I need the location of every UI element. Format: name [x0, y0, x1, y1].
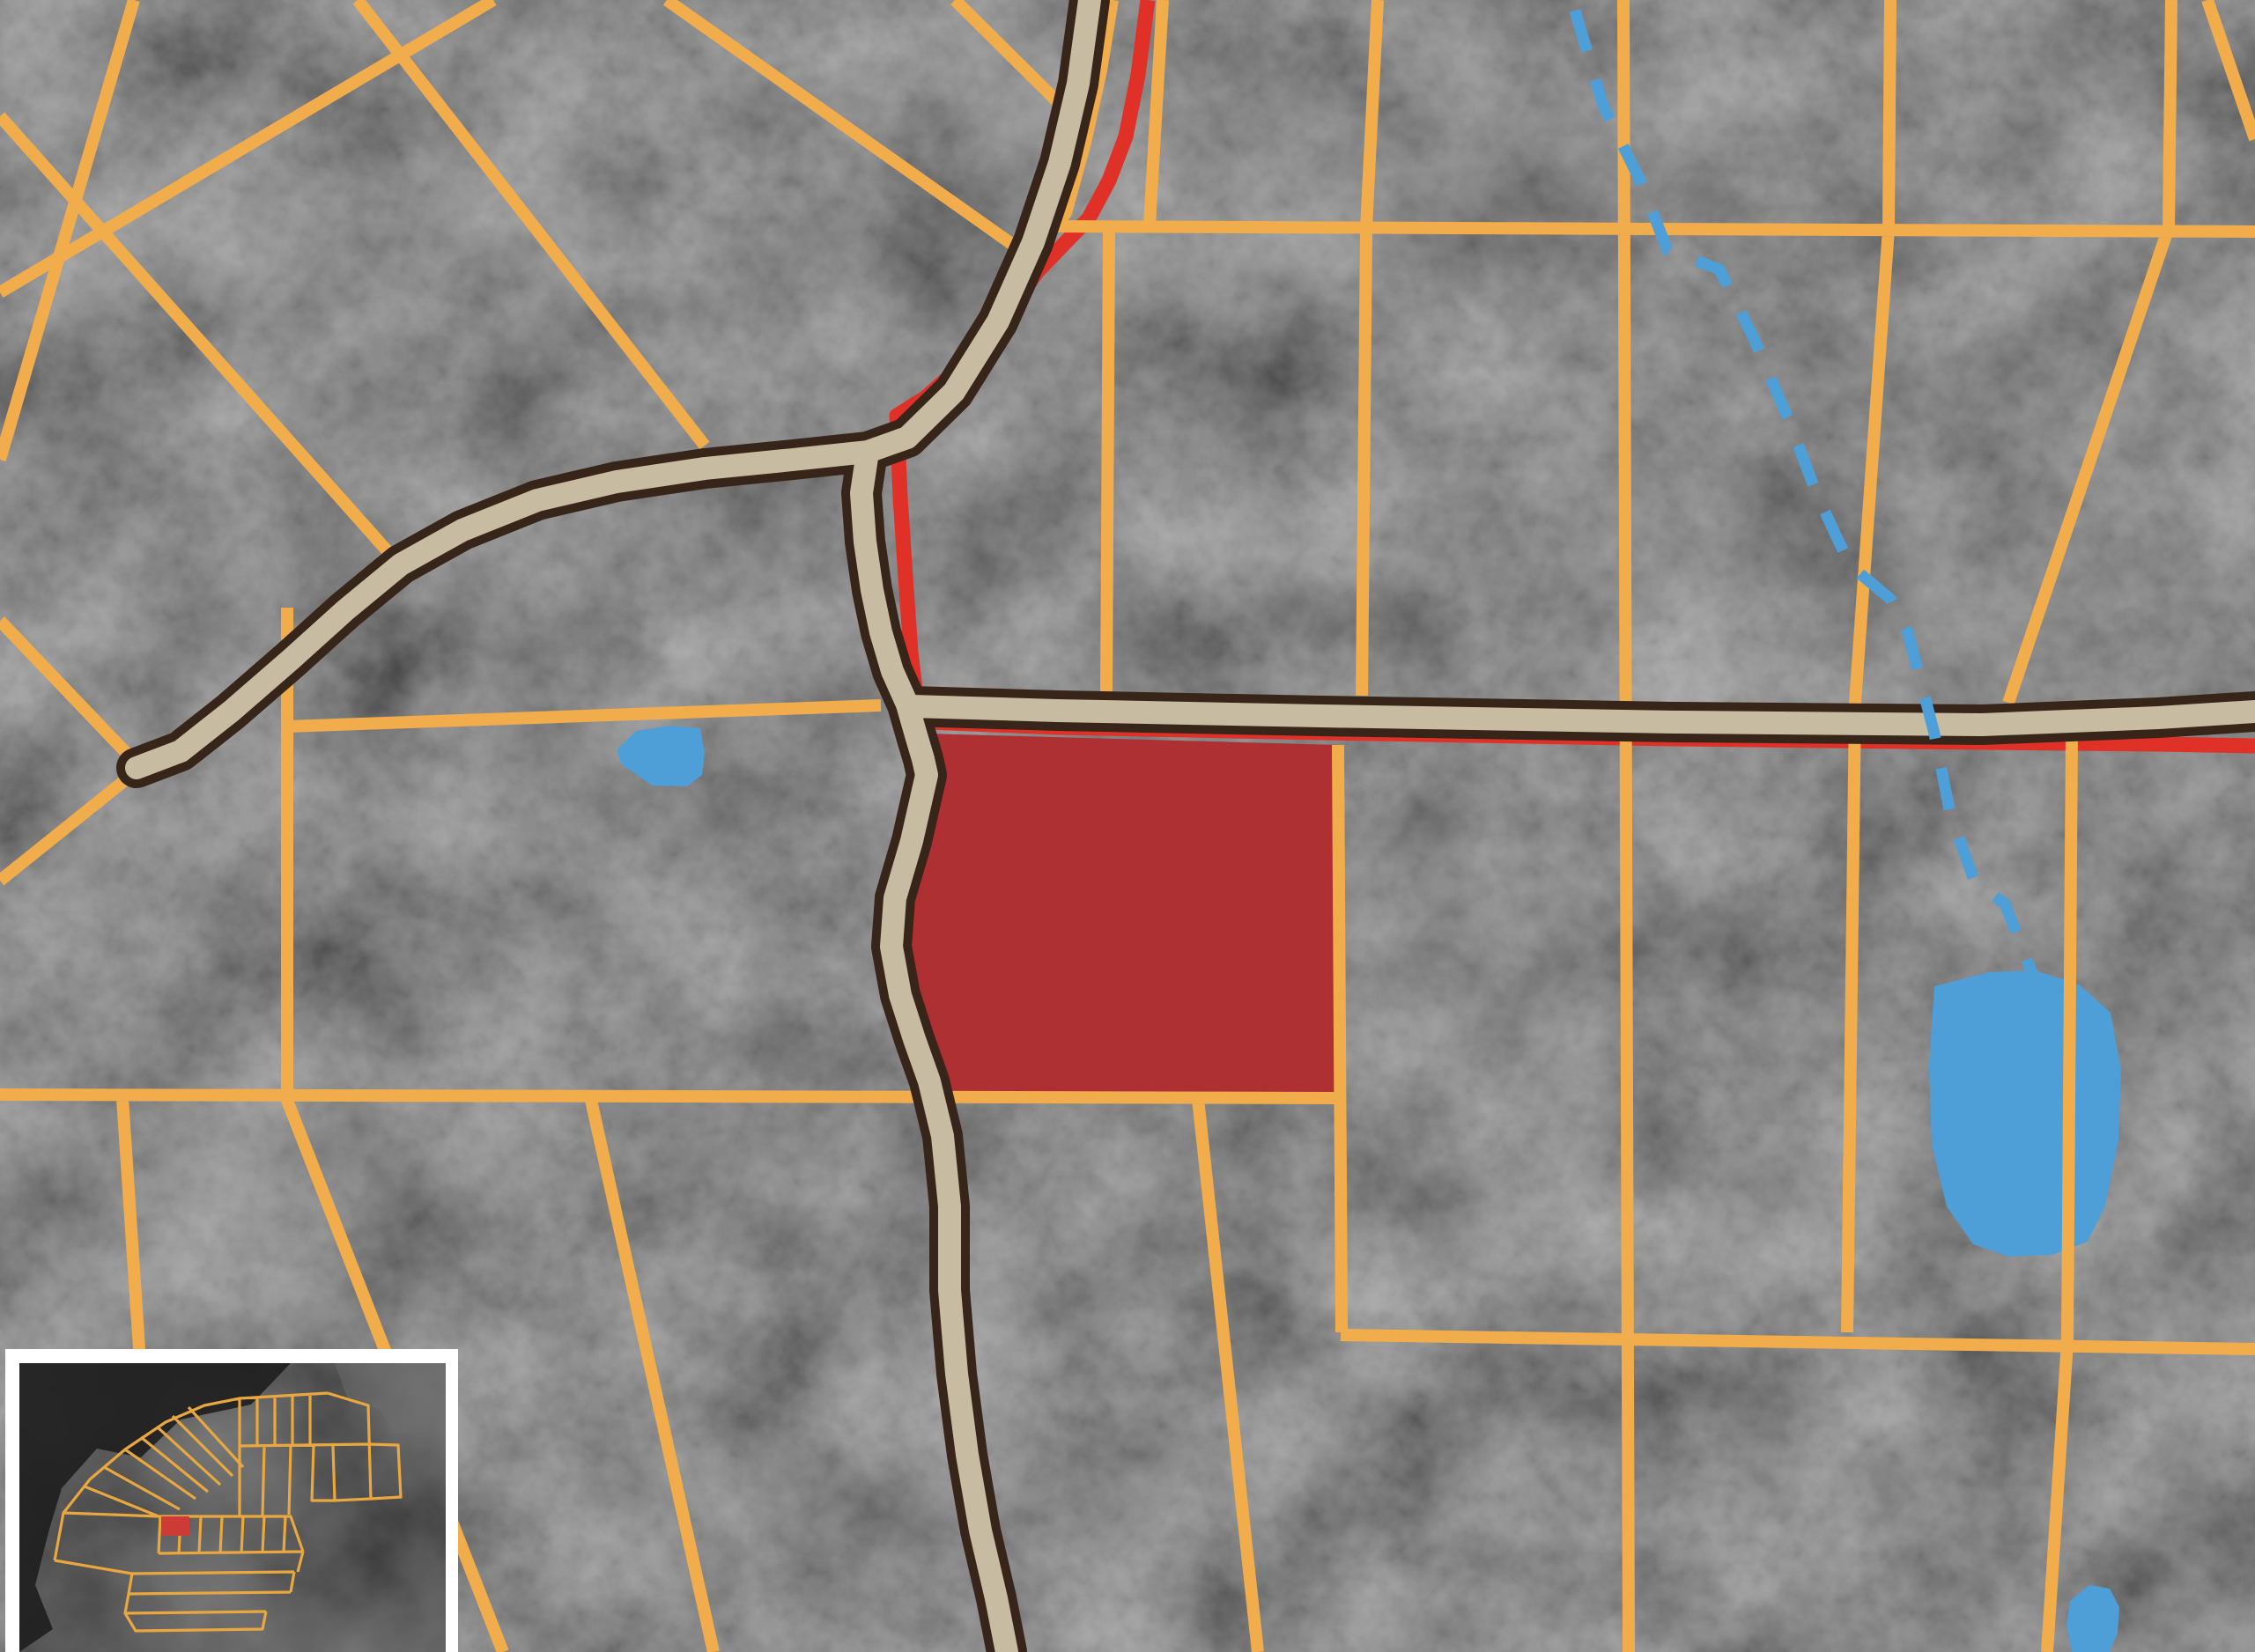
inset-overview-map[interactable] [5, 1349, 458, 1652]
map-svg [0, 0, 2255, 1652]
highlighted-parcel[interactable] [899, 734, 1338, 1097]
inset-highlighted-parcel[interactable] [161, 1516, 189, 1536]
map-canvas[interactable] [0, 0, 2255, 1652]
lake-east [1929, 970, 2121, 1257]
